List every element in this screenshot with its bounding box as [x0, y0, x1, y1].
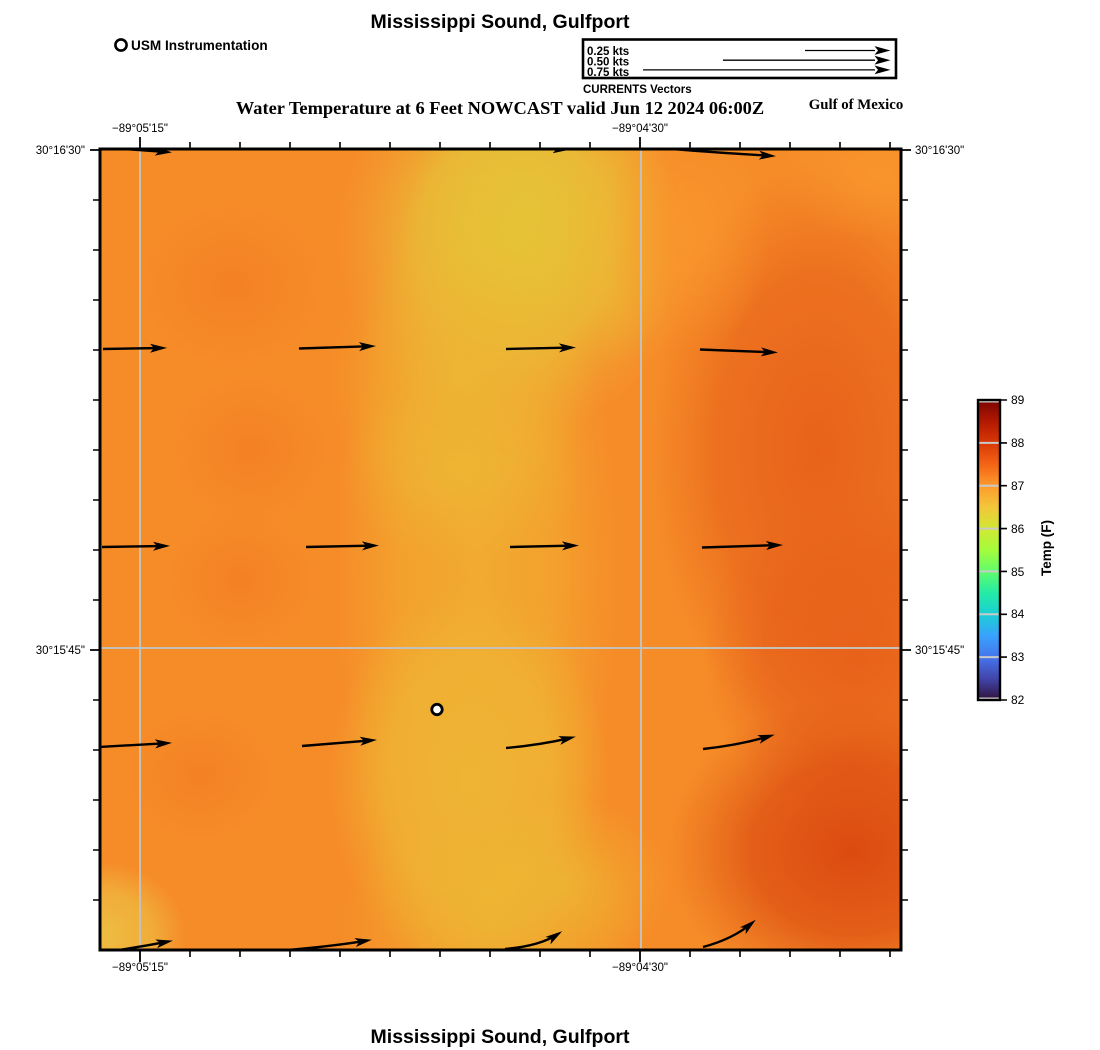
svg-text:85: 85	[1011, 565, 1025, 579]
svg-text:84: 84	[1011, 607, 1025, 621]
svg-text:Temp (F): Temp (F)	[1039, 520, 1054, 576]
svg-text:30°15'45": 30°15'45"	[36, 645, 85, 657]
svg-text:Water Temperature at 6 Feet NO: Water Temperature at 6 Feet NOWCAST vali…	[236, 98, 764, 118]
svg-text:30°16'30": 30°16'30"	[36, 145, 85, 157]
svg-text:−89°05'15": −89°05'15"	[112, 962, 168, 974]
svg-text:Gulf of Mexico: Gulf of Mexico	[809, 97, 904, 113]
svg-text:Mississippi Sound, Gulfport: Mississippi Sound, Gulfport	[371, 1026, 630, 1048]
svg-text:87: 87	[1011, 479, 1025, 493]
svg-text:82: 82	[1011, 693, 1025, 707]
svg-text:−89°04'30": −89°04'30"	[612, 962, 668, 974]
svg-text:−89°05'15": −89°05'15"	[112, 123, 168, 135]
svg-text:88: 88	[1011, 436, 1025, 450]
svg-text:30°15'45": 30°15'45"	[915, 645, 964, 657]
svg-text:83: 83	[1011, 650, 1025, 664]
svg-text:−89°04'30": −89°04'30"	[612, 123, 668, 135]
svg-text:0.75 kts: 0.75 kts	[587, 67, 629, 79]
svg-text:30°16'30": 30°16'30"	[915, 145, 964, 157]
svg-text:86: 86	[1011, 522, 1025, 536]
svg-text:CURRENTS Vectors: CURRENTS Vectors	[583, 84, 692, 96]
svg-text:USM Instrumentation: USM Instrumentation	[131, 38, 268, 53]
svg-text:89: 89	[1011, 393, 1025, 407]
svg-text:Mississippi Sound, Gulfport: Mississippi Sound, Gulfport	[371, 11, 630, 33]
